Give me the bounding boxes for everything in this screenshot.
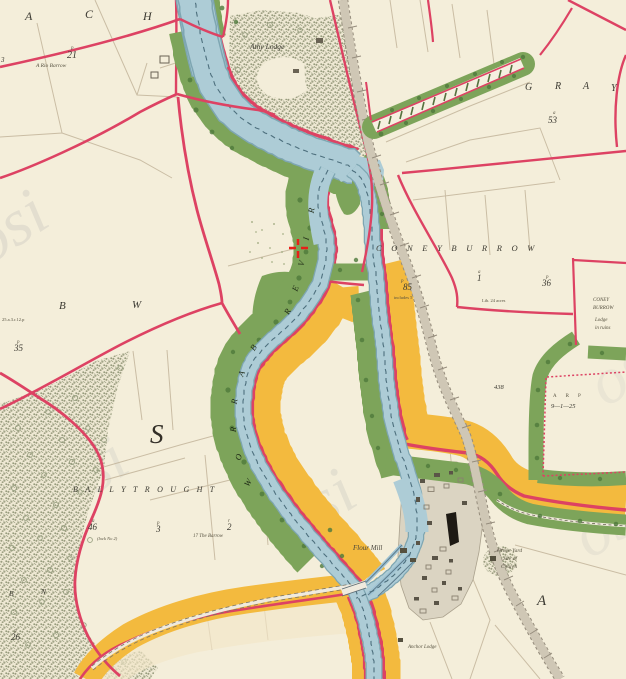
svg-text:includes 5: includes 5 [394,295,413,300]
svg-text:53: 53 [548,115,558,125]
svg-text:25.a.3.r.12.p: 25.a.3.r.12.p [2,317,25,322]
svg-text:p: p [16,340,20,345]
svg-text:A: A [582,81,590,92]
svg-text:3: 3 [0,56,5,64]
svg-text:C: C [85,7,94,21]
svg-text:Church: Church [501,564,518,570]
svg-text:Site of: Site of [503,555,518,562]
svg-text:CONEY: CONEY [593,298,610,303]
svg-text:in ruins: in ruins [595,326,610,331]
svg-text:17 The Barrow: 17 The Barrow [193,534,224,539]
svg-text:R: R [554,81,561,92]
svg-text:G: G [525,82,532,93]
svg-text:r: r [228,519,230,524]
svg-text:Lib. 24 acres: Lib. 24 acres [482,298,506,303]
svg-text:9—1—25: 9—1—25 [551,403,576,410]
svg-text:Flour Mill: Flour Mill [352,544,382,552]
svg-text:Lodge: Lodge [594,318,608,323]
svg-text:ARP: ARP [553,394,590,399]
svg-text:W: W [132,299,142,311]
svg-text:BURROW: BURROW [593,306,614,311]
svg-text:Anchor Lodge: Anchor Lodge [407,645,437,650]
svg-text:p: p [400,279,404,284]
svg-text:438: 438 [494,384,505,391]
svg-text:Athy Lodge: Athy Lodge [249,42,285,51]
svg-text:A Rio Barrow: A Rio Barrow [35,63,67,69]
svg-text:(lock No 2): (lock No 2) [97,536,118,541]
svg-text:A: A [536,593,547,609]
svg-text:p: p [545,275,549,280]
svg-text:CONEYBURROW: CONEYBURROW [376,243,544,253]
svg-text:p: p [13,629,17,634]
svg-text:BALLYTROUGHT: BALLYTROUGHT [73,485,222,494]
svg-text:A: A [24,9,33,23]
svg-text:p: p [70,46,74,51]
svg-text:H: H [142,9,153,23]
svg-text:S: S [150,419,164,449]
svg-text:B: B [9,589,14,598]
svg-text:21: 21 [67,50,77,61]
svg-text:B: B [59,300,66,312]
svg-text:Grave Yard: Grave Yard [497,548,522,554]
svg-text:p: p [156,521,160,526]
svg-text:N: N [40,587,47,596]
svg-text:85: 85 [403,282,413,292]
